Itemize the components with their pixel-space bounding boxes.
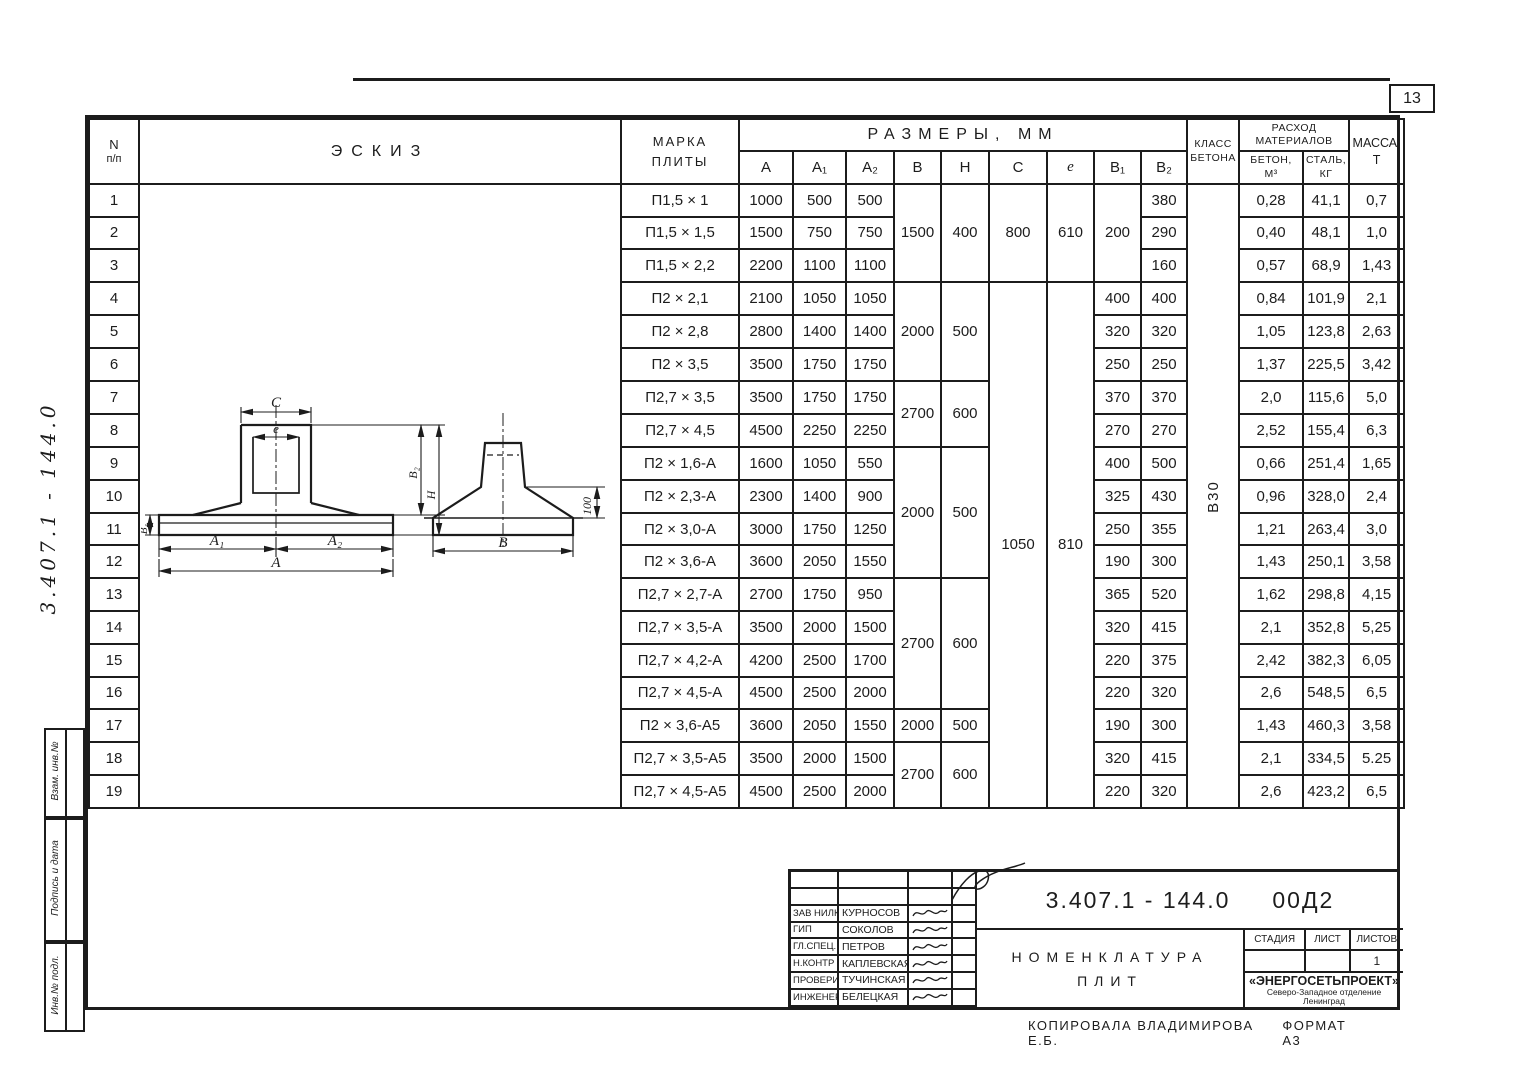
cell-b2: 500 [1141, 447, 1187, 481]
sheets-label: Листов [1351, 930, 1403, 951]
cell-a: 3500 [739, 381, 793, 415]
cell-beton: 2,42 [1239, 644, 1303, 677]
cell-mark: П2,7 × 3,5-А [621, 611, 739, 644]
col-header-sketch: Эскиз [139, 119, 621, 184]
cell-b1: 200 [1094, 184, 1141, 282]
cell-mark: П2 × 1,6-А [621, 447, 739, 481]
cell-b2: 320 [1141, 315, 1187, 348]
footer-note: Копировала Владимирова Е.Б. формат А3 [1028, 1018, 1368, 1048]
cell-stal: 334,5 [1303, 742, 1349, 776]
cell-stal: 251,4 [1303, 447, 1349, 481]
cell-beton: 2,1 [1239, 611, 1303, 644]
cell-a2: 2000 [846, 677, 894, 710]
cell-b2: 160 [1141, 249, 1187, 282]
cell-massa: 3,58 [1349, 545, 1404, 578]
sign-name: Соколов [839, 923, 909, 940]
stamp-box-podpis: Подпись и дата [44, 818, 85, 942]
cell-stal: 423,2 [1303, 775, 1349, 808]
sign-signature [909, 990, 953, 1007]
sign-name: Каплевская [839, 956, 909, 973]
stamp-box-inv: Инв.№ подл. [44, 942, 85, 1032]
cell-a: 2800 [739, 315, 793, 348]
col-header-n: N [109, 137, 118, 152]
cell-massa: 1,43 [1349, 249, 1404, 282]
col-header-steel: Сталь, кг [1303, 151, 1349, 184]
cell-a2: 1750 [846, 348, 894, 381]
cell-mark: П2 × 2,8 [621, 315, 739, 348]
sign-role: Гл.спец. [791, 939, 839, 956]
cell-n: 2 [89, 217, 139, 250]
cell-a: 3000 [739, 513, 793, 546]
cell-b1: 250 [1094, 513, 1141, 546]
cell-n: 17 [89, 709, 139, 742]
stage-value [1245, 951, 1306, 973]
sign-name: Белецкая [839, 990, 909, 1007]
cell-stal: 101,9 [1303, 282, 1349, 316]
cell-b: 2700 [894, 742, 941, 808]
sign-signature [909, 906, 953, 923]
cell-b2: 355 [1141, 513, 1187, 546]
cell-b1: 400 [1094, 447, 1141, 481]
cell-n: 12 [89, 545, 139, 578]
cell-stal: 460,3 [1303, 709, 1349, 742]
cell-massa: 5,25 [1349, 611, 1404, 644]
cell-beton: 1,43 [1239, 709, 1303, 742]
cell-n: 4 [89, 282, 139, 316]
document-number: 3.407.1 - 144.0 [1046, 887, 1231, 914]
sheet-title-line2: плит [1077, 973, 1143, 989]
cell-mark: П2,7 × 2,7-А [621, 578, 739, 612]
cell-massa: 6,5 [1349, 677, 1404, 710]
cell-n: 10 [89, 480, 139, 513]
cell-a2: 1500 [846, 611, 894, 644]
col-header-stal-2: кг [1304, 168, 1348, 181]
col-header-mark: Марка плиты [621, 119, 739, 184]
signature-squiggle [911, 923, 949, 937]
cell-n: 6 [89, 348, 139, 381]
sheets-value: 1 [1351, 951, 1403, 973]
cell-b2: 380 [1141, 184, 1187, 217]
cell-b2: 400 [1141, 282, 1187, 316]
cell-massa: 3,58 [1349, 709, 1404, 742]
col-header-dimensions: Размеры, мм [739, 119, 1187, 151]
cell-a2: 500 [846, 184, 894, 217]
col-header-massa-1: Масса, [1350, 135, 1403, 151]
col-header-b1: B₁ [1094, 151, 1141, 184]
cell-a2: 1550 [846, 709, 894, 742]
organization-city: Ленинград [1303, 997, 1345, 1006]
cell-beton: 0,40 [1239, 217, 1303, 250]
cell-beton: 2,52 [1239, 414, 1303, 447]
col-header-a1: A₁ [793, 151, 846, 184]
concrete-class-value: В30 [1205, 480, 1222, 513]
stamp-label-vzam: Взам. инв.№ [46, 726, 65, 816]
sign-signature [909, 956, 953, 973]
sign-date [953, 956, 977, 973]
cell-h: 600 [941, 578, 989, 709]
cell-a1: 750 [793, 217, 846, 250]
cell-n: 8 [89, 414, 139, 447]
cell-b1: 220 [1094, 644, 1141, 677]
cell-stal: 41,1 [1303, 184, 1349, 217]
cell-n: 3 [89, 249, 139, 282]
signature-squiggle [911, 990, 949, 1004]
cell-b1: 220 [1094, 677, 1141, 710]
cell-beton: 0,96 [1239, 480, 1303, 513]
cell-a2: 1700 [846, 644, 894, 677]
cell-stal: 548,5 [1303, 677, 1349, 710]
cell-massa: 3,42 [1349, 348, 1404, 381]
plate-table-body: 1 [89, 184, 1404, 808]
cell-a: 4200 [739, 644, 793, 677]
cell-mark: П2 × 3,5 [621, 348, 739, 381]
col-header-a: A [739, 151, 793, 184]
cell-stal: 115,6 [1303, 381, 1349, 415]
cell-a: 2100 [739, 282, 793, 316]
cell-beton: 2,0 [1239, 381, 1303, 415]
cell-mark: П2,7 × 4,5-А [621, 677, 739, 710]
cell-stal: 382,3 [1303, 644, 1349, 677]
cell-n: 18 [89, 742, 139, 776]
cell-stal: 250,1 [1303, 545, 1349, 578]
cell-a2: 550 [846, 447, 894, 481]
cell-a1: 500 [793, 184, 846, 217]
cell-n: 5 [89, 315, 139, 348]
cell-mark: П2 × 3,6-А [621, 545, 739, 578]
dim-label-e: e [273, 421, 279, 436]
drawing-frame: N п/п Эскиз Марка плиты Размеры, мм Клас… [85, 115, 1400, 1010]
sign-date [953, 923, 977, 940]
col-header-number: N п/п [89, 119, 139, 184]
sheet-title-line1: Номенклатура [1012, 949, 1209, 965]
signature-squiggle [911, 957, 949, 971]
cell-stal: 68,9 [1303, 249, 1349, 282]
col-header-massa-2: т [1350, 152, 1403, 168]
cell-stal: 225,5 [1303, 348, 1349, 381]
cell-a: 3500 [739, 348, 793, 381]
cell-a2: 900 [846, 480, 894, 513]
col-header-c: C [989, 151, 1047, 184]
cell-massa: 2,63 [1349, 315, 1404, 348]
cell-n: 15 [89, 644, 139, 677]
cell-b1: 370 [1094, 381, 1141, 415]
cell-b: 2000 [894, 709, 941, 742]
cell-a2: 1500 [846, 742, 894, 776]
cell-a: 2700 [739, 578, 793, 612]
organization-name: «ЭНЕРГОСЕТЬПРОЕКТ» [1249, 975, 1399, 988]
cell-a2: 1050 [846, 282, 894, 316]
dim-label-b2: B₂ [406, 467, 420, 479]
cell-mark: П1,5 × 1 [621, 184, 739, 217]
cell-h: 500 [941, 282, 989, 381]
page-number-box: 13 [1389, 84, 1435, 113]
cell-mark: П2,7 × 4,5-А5 [621, 775, 739, 808]
cell-a2: 1100 [846, 249, 894, 282]
cell-massa: 5.25 [1349, 742, 1404, 776]
col-header-mass: Масса, т [1349, 119, 1404, 184]
sign-date [953, 939, 977, 956]
cell-b: 2700 [894, 381, 941, 447]
cell-mark: П1,5 × 1,5 [621, 217, 739, 250]
cell-b2: 320 [1141, 775, 1187, 808]
cell-massa: 6,05 [1349, 644, 1404, 677]
sign-role [791, 889, 839, 906]
sign-signature [909, 889, 953, 906]
col-header-rashod-1: Расход [1240, 122, 1348, 135]
table-header: N п/п Эскиз Марка плиты Размеры, мм Клас… [89, 119, 1404, 184]
signature-squiggle [911, 973, 949, 987]
table-row: 1 [89, 184, 1404, 217]
dimension-lines [145, 407, 605, 577]
signature-squiggle [911, 906, 949, 920]
stamp-label-podpis: Подпись и дата [46, 816, 65, 940]
cell-b2: 430 [1141, 480, 1187, 513]
stage-label: Стадия [1245, 930, 1306, 951]
cell-mark: П1,5 × 2,2 [621, 249, 739, 282]
cell-stal: 48,1 [1303, 217, 1349, 250]
cell-massa: 3,0 [1349, 513, 1404, 546]
cell-b: 2000 [894, 447, 941, 578]
col-header-materials: Расход материалов [1239, 119, 1349, 151]
cell-stal: 155,4 [1303, 414, 1349, 447]
sign-role: ГИП [791, 923, 839, 940]
cell-h: 400 [941, 184, 989, 282]
cell-beton: 0,57 [1239, 249, 1303, 282]
document-suffix: 00Д2 [1272, 887, 1334, 914]
cell-massa: 4,15 [1349, 578, 1404, 612]
cell-b1: 190 [1094, 545, 1141, 578]
page-number: 13 [1403, 90, 1421, 108]
cell-b2: 300 [1141, 545, 1187, 578]
cell-b: 2700 [894, 578, 941, 709]
dim-label-b: B [498, 535, 507, 551]
cell-massa: 6,5 [1349, 775, 1404, 808]
cell-b2: 375 [1141, 644, 1187, 677]
col-header-h: H [941, 151, 989, 184]
cell-a1: 1400 [793, 480, 846, 513]
cell-b2: 300 [1141, 709, 1187, 742]
cell-a: 1600 [739, 447, 793, 481]
col-header-a2: A₂ [846, 151, 894, 184]
cell-a1: 2250 [793, 414, 846, 447]
cell-a: 2300 [739, 480, 793, 513]
cell-stal: 328,0 [1303, 480, 1349, 513]
cell-b1: 190 [1094, 709, 1141, 742]
cell-b1: 320 [1094, 611, 1141, 644]
col-header-beton-2: м³ [1240, 168, 1302, 181]
cell-h: 500 [941, 709, 989, 742]
cell-mark: П2,7 × 4,2-А [621, 644, 739, 677]
cell-b: 1500 [894, 184, 941, 282]
sign-name [839, 872, 909, 889]
cell-a2: 1400 [846, 315, 894, 348]
cell-a: 3600 [739, 545, 793, 578]
cell-b1: 270 [1094, 414, 1141, 447]
cell-a: 1500 [739, 217, 793, 250]
cell-a2: 2250 [846, 414, 894, 447]
vertical-doc-number: 3.407.1 - 144.0 [36, 368, 60, 648]
cell-a1: 2500 [793, 775, 846, 808]
cell-a: 4500 [739, 775, 793, 808]
sign-signature [909, 973, 953, 990]
col-header-klass-1: Класс [1188, 138, 1238, 151]
cell-beton: 1,37 [1239, 348, 1303, 381]
cell-a1: 1750 [793, 381, 846, 415]
cell-mark: П2 × 3,6-А5 [621, 709, 739, 742]
cell-n: 9 [89, 447, 139, 481]
cell-massa: 6,3 [1349, 414, 1404, 447]
stamp-box-vzam: Взам. инв.№ [44, 728, 85, 818]
format-note: формат А3 [1282, 1018, 1368, 1048]
cell-c: 1050 [989, 282, 1047, 808]
cell-a: 4500 [739, 414, 793, 447]
col-header-np: п/п [90, 153, 138, 165]
cell-c: 800 [989, 184, 1047, 282]
cell-beton: 1,43 [1239, 545, 1303, 578]
cell-massa: 5,0 [1349, 381, 1404, 415]
cell-beton: 0,66 [1239, 447, 1303, 481]
cell-b1: 325 [1094, 480, 1141, 513]
col-header-mark-1: Марка [622, 132, 738, 152]
cell-a1: 1750 [793, 578, 846, 612]
cell-b2: 250 [1141, 348, 1187, 381]
cell-n: 1 [89, 184, 139, 217]
cell-n: 7 [89, 381, 139, 415]
cell-b2: 415 [1141, 742, 1187, 776]
cell-e: 610 [1047, 184, 1094, 282]
cell-n: 11 [89, 513, 139, 546]
sign-date [953, 990, 977, 1007]
sheet-title-box: Номенклатура плит [977, 930, 1243, 1007]
sketch-cell: C e B₁ B₂ H A₁ A₂ A B 100 [139, 184, 621, 808]
col-header-b: B [894, 151, 941, 184]
dim-label-a: A [270, 555, 281, 571]
sign-name: Тучинская [839, 973, 909, 990]
cell-beton: 2,6 [1239, 677, 1303, 710]
cell-n: 19 [89, 775, 139, 808]
handwritten-flourish [948, 858, 1028, 910]
cell-e: 810 [1047, 282, 1094, 808]
dimension-labels: C e B₁ B₂ H A₁ A₂ A B 100 [141, 395, 594, 571]
cell-mark: П2,7 × 3,5 [621, 381, 739, 415]
cell-a: 3600 [739, 709, 793, 742]
cell-a2: 1550 [846, 545, 894, 578]
cell-a: 3500 [739, 742, 793, 776]
sheet-value [1306, 951, 1350, 973]
cell-stal: 123,8 [1303, 315, 1349, 348]
col-header-mark-2: плиты [622, 152, 738, 172]
top-border-rule [353, 78, 1390, 81]
sign-name: Петров [839, 939, 909, 956]
cell-h: 600 [941, 742, 989, 808]
cell-a1: 1100 [793, 249, 846, 282]
signature-squiggle [911, 940, 949, 954]
cell-a1: 2500 [793, 644, 846, 677]
cell-a1: 2000 [793, 611, 846, 644]
cell-b2: 270 [1141, 414, 1187, 447]
cell-a2: 950 [846, 578, 894, 612]
plate-nomenclature-table: N п/п Эскиз Марка плиты Размеры, мм Клас… [88, 118, 1405, 809]
cell-b2: 415 [1141, 611, 1187, 644]
cell-a1: 2050 [793, 545, 846, 578]
cell-beton: 0,28 [1239, 184, 1303, 217]
document-number-box: 3.407.1 - 144.0 00Д2 [977, 872, 1403, 930]
cell-stal: 298,8 [1303, 578, 1349, 612]
col-header-b2: B₂ [1141, 151, 1187, 184]
cell-h: 500 [941, 447, 989, 578]
cell-beton: 0,84 [1239, 282, 1303, 316]
cell-b2: 290 [1141, 217, 1187, 250]
sign-role: Проверила [791, 973, 839, 990]
cell-beton: 1,05 [1239, 315, 1303, 348]
cell-b1: 250 [1094, 348, 1141, 381]
stamp-label-inv: Инв.№ подл. [46, 940, 65, 1030]
cell-n: 14 [89, 611, 139, 644]
cell-beton: 2,1 [1239, 742, 1303, 776]
cell-n: 16 [89, 677, 139, 710]
sign-role: Инженер [791, 990, 839, 1007]
cell-mark: П2 × 3,0-А [621, 513, 739, 546]
dim-label-a2: A₂ [327, 533, 342, 549]
cell-beton: 1,62 [1239, 578, 1303, 612]
cell-a: 2200 [739, 249, 793, 282]
sheet-label: Лист [1306, 930, 1350, 951]
cell-b2: 520 [1141, 578, 1187, 612]
sign-date [953, 973, 977, 990]
cell-mark: П2 × 2,1 [621, 282, 739, 316]
sign-role: Н.контр [791, 956, 839, 973]
col-header-rashod-2: материалов [1240, 135, 1348, 148]
cell-a2: 1750 [846, 381, 894, 415]
cell-a: 3500 [739, 611, 793, 644]
cell-stal: 352,8 [1303, 611, 1349, 644]
cell-a: 1000 [739, 184, 793, 217]
cell-a2: 1250 [846, 513, 894, 546]
cell-massa: 2,1 [1349, 282, 1404, 316]
cell-n: 13 [89, 578, 139, 612]
dim-label-b1: B₁ [141, 524, 150, 535]
dim-label-h: H [424, 489, 438, 500]
scanned-drawing-sheet: 13 3.407.1 - 144.0 Взам. инв.№ Подпись и… [0, 0, 1527, 1089]
dim-label-c: C [271, 395, 282, 411]
sign-name: Курносов [839, 906, 909, 923]
col-header-klass-2: бетона [1188, 152, 1238, 165]
cell-massa: 2,4 [1349, 480, 1404, 513]
cell-a2: 2000 [846, 775, 894, 808]
cell-mark: П2 × 2,3-А [621, 480, 739, 513]
sign-signature [909, 923, 953, 940]
sign-signature [909, 872, 953, 889]
cell-a1: 1750 [793, 348, 846, 381]
organization-box: «ЭНЕРГОСЕТЬПРОЕКТ» Северо-Западное отдел… [1243, 973, 1403, 1007]
cell-b1: 220 [1094, 775, 1141, 808]
cell-beton: 2,6 [1239, 775, 1303, 808]
cell-a1: 1050 [793, 447, 846, 481]
cell-h: 600 [941, 381, 989, 447]
copied-by: Копировала Владимирова Е.Б. [1028, 1018, 1282, 1048]
col-header-concrete-class: Класс бетона [1187, 119, 1239, 184]
sign-role [791, 872, 839, 889]
cell-mark: П2,7 × 3,5-А5 [621, 742, 739, 776]
cell-stal: 263,4 [1303, 513, 1349, 546]
col-header-stal-1: Сталь, [1304, 154, 1348, 167]
cell-a: 4500 [739, 677, 793, 710]
cell-a1: 2050 [793, 709, 846, 742]
cell-b1: 320 [1094, 742, 1141, 776]
cell-mark: П2,7 × 4,5 [621, 414, 739, 447]
sign-signature [909, 939, 953, 956]
col-header-beton-1: Бетон, [1240, 154, 1302, 167]
